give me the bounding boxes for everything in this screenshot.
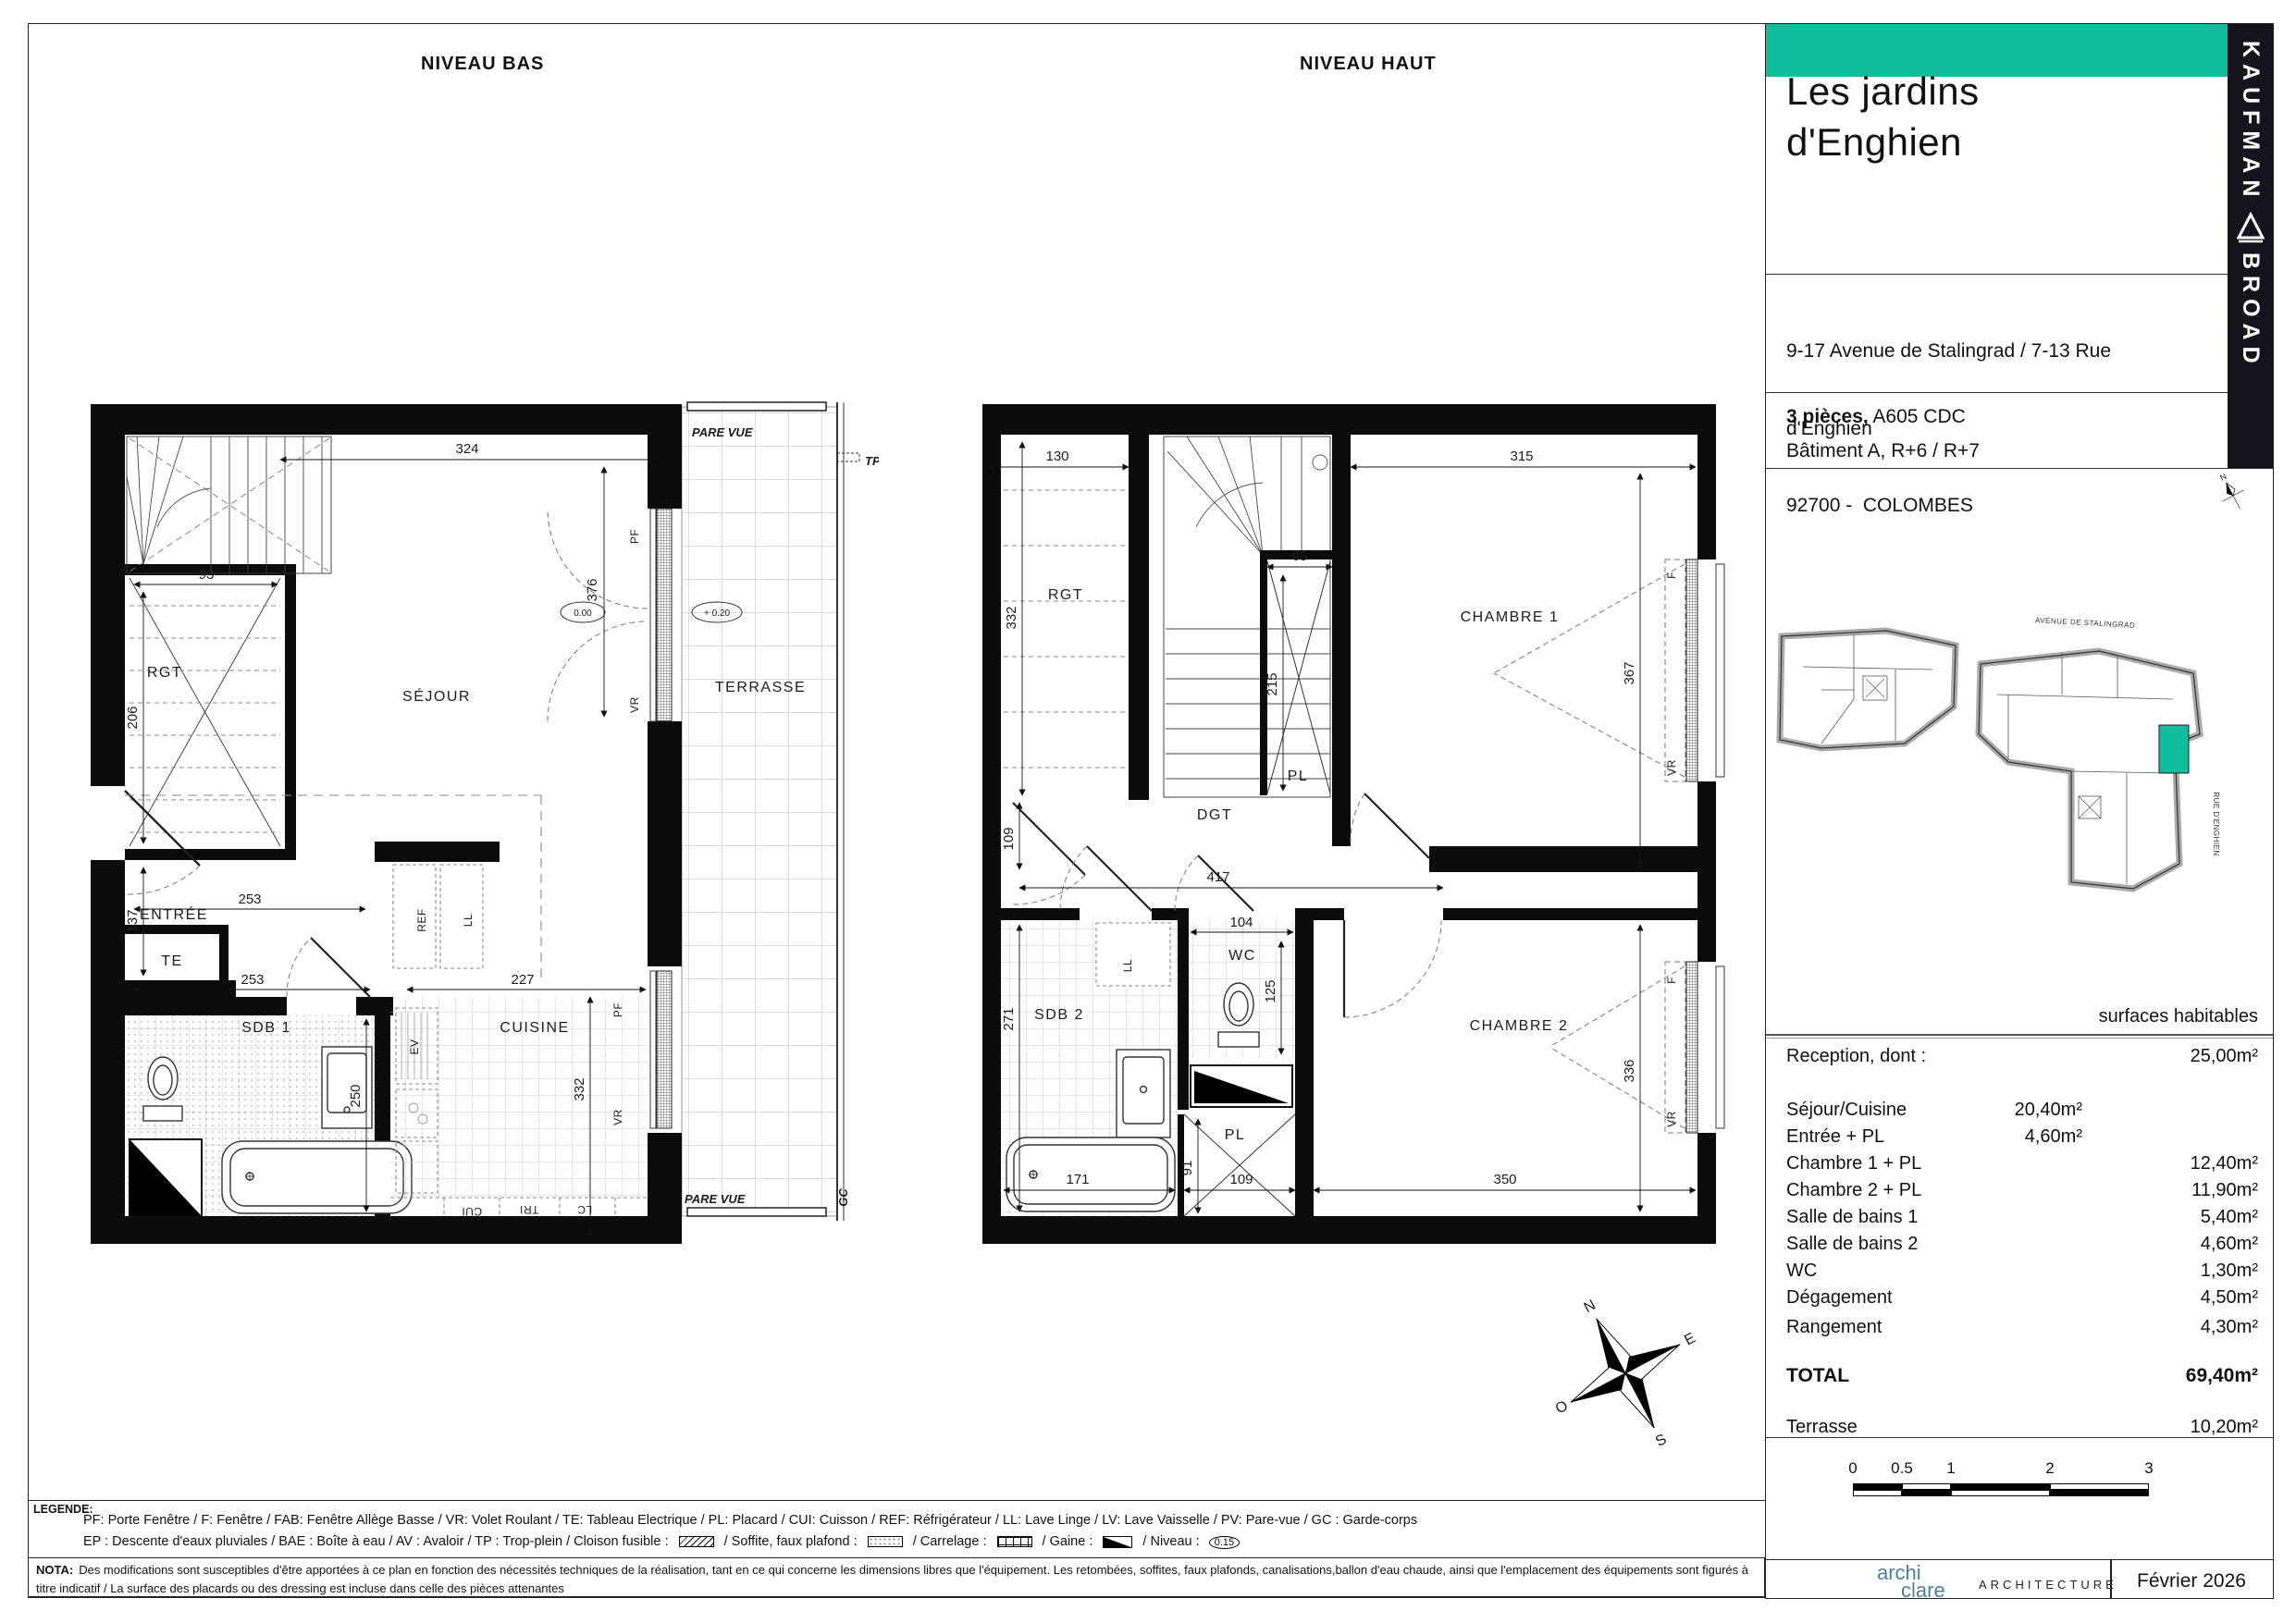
title-block-panel: KAUFMAN BROAD Les jardins d'Enghien 9-17…: [1765, 23, 2274, 1599]
soffit-dashes: [125, 795, 541, 978]
washbasin-icon: [1117, 1050, 1170, 1137]
row-label: Dégagement: [1786, 1287, 1893, 1309]
divider: [1766, 1034, 2273, 1036]
wc-zone: [1189, 920, 1295, 1059]
label-pare-vue-top: PARE VUE: [692, 425, 753, 439]
divider: [1766, 1437, 2273, 1438]
row-value: 12,40m²: [2191, 1153, 2258, 1174]
legend-line2-text-d: / Gaine :: [1043, 1534, 1093, 1549]
dim-215: 215: [1265, 672, 1280, 695]
dim-130: 130: [1045, 449, 1068, 464]
nota-label: NOTA:: [36, 1563, 73, 1577]
pare-vue-bar-bottom: [687, 1208, 826, 1216]
legend-line2: EP : Descente d'eaux pluviales / BAE : B…: [83, 1534, 1240, 1549]
stairs-icon: [127, 436, 331, 573]
kaufman-broad-triangle-icon: [2237, 212, 2265, 243]
row-label: Chambre 1 + PL: [1786, 1153, 1921, 1174]
surfaces-header: surfaces habitables: [1766, 1006, 2258, 1027]
label-f-chambre2: F: [1665, 977, 1678, 984]
room-sejour: SÉJOUR: [402, 687, 471, 705]
label-vr-cuisine: VR: [611, 1109, 624, 1125]
chambre2-window: [1686, 962, 1724, 1133]
table-row: Chambre 1 + PL12,40m²: [1766, 1153, 2273, 1177]
project-name-line2: d'Enghien: [1786, 117, 1980, 167]
table-row: WC1,30m²: [1766, 1260, 2273, 1285]
label-f-chambre1: F: [1665, 572, 1678, 579]
room-rgt: RGT: [1048, 587, 1083, 603]
label-vr-sejour: VR: [628, 696, 641, 713]
keyplan-building-a: [1780, 631, 1956, 748]
entrance-door: [125, 791, 200, 894]
scale-tick-1: 1: [1946, 1459, 1955, 1478]
nota: NOTA:Des modifications sont susceptibles…: [28, 1557, 1765, 1597]
plan-title-bas: NIVEAU BAS: [421, 54, 544, 75]
project-name: Les jardins d'Enghien: [1786, 66, 1980, 168]
label-ref: REF: [415, 908, 428, 932]
dim-227: 227: [511, 972, 534, 988]
row-value-mid: 20,40m²: [2015, 1100, 2082, 1121]
scale-tick-0: 0: [1848, 1459, 1857, 1478]
compass-rose: N E S O: [1547, 1285, 1704, 1461]
project-name-line1: Les jardins: [1786, 66, 1980, 117]
brand-broad: BROAD: [2237, 252, 2264, 370]
room-entree: ENTRÉE: [140, 905, 208, 923]
room-pl-top: PL: [1288, 768, 1309, 784]
north-icon: N: [2210, 468, 2251, 514]
floorplan-niveau-haut: 130 332 65 215 315 367 417 109 104 125 2…: [976, 379, 1725, 1304]
row-label: WC: [1786, 1260, 1817, 1282]
sdb1-zone: [125, 938, 412, 1216]
terrace-value: 10,20m²: [2191, 1417, 2258, 1438]
room-te: TE: [161, 953, 182, 969]
cuisine-zone: [390, 865, 648, 1216]
dim-315: 315: [1510, 449, 1533, 464]
label-pf-sejour: PF: [628, 529, 641, 544]
row-value: 11,90m²: [2191, 1180, 2258, 1201]
level-020: + 0.20: [704, 609, 731, 619]
room-cuisine: CUISINE: [500, 1020, 569, 1036]
unit-ref: A605 CDC: [1869, 406, 1966, 427]
row-label: Séjour/Cuisine: [1786, 1100, 1907, 1121]
keyplan-unit-highlight: [2159, 725, 2189, 773]
row-value-mid: 4,60m²: [2025, 1126, 2082, 1148]
table-row: Dégagement4,50m²: [1766, 1287, 2273, 1311]
gaine-icon: [1191, 1065, 1292, 1107]
dim-417: 417: [1206, 869, 1229, 885]
table-row: Entrée + PL4,60m²: [1766, 1126, 2273, 1150]
terrace-label: Terrasse: [1786, 1417, 1858, 1438]
row-value: 25,00m²: [2191, 1046, 2258, 1067]
scale-tick-3: 3: [2144, 1459, 2153, 1478]
dim-104: 104: [1229, 915, 1253, 930]
label-ll-sdb2: LL: [1121, 959, 1134, 972]
chambre1-window: [1686, 559, 1724, 781]
dim-65: 65: [1292, 548, 1308, 564]
address-line1: 9-17 Avenue de Stalingrad / 7-13 Rue: [1786, 338, 2212, 364]
label-vr-chambre1: VR: [1665, 759, 1678, 776]
row-value: 4,50m²: [2201, 1287, 2258, 1309]
plan-title-haut: NIVEAU HAUT: [1300, 54, 1437, 75]
row-label: Salle de bains 2: [1786, 1234, 1918, 1255]
legend-line2-text-a: EP : Descente d'eaux pluviales / BAE : B…: [83, 1534, 669, 1549]
keyplan-building-b: [1979, 651, 2200, 889]
terrace-zone: [682, 402, 859, 1221]
scale-tick-05: 0.5: [1891, 1459, 1913, 1478]
architect-logo: archi clare: [1877, 1565, 1945, 1599]
gaine-icon: [130, 1139, 202, 1216]
divider: [1766, 392, 2228, 393]
legend: LEGENDE: PF: Porte Fenêtre / F: Fenêtre …: [28, 1500, 1765, 1558]
room-sdb1: SDB 1: [241, 1020, 291, 1036]
label-tp: TP: [865, 454, 879, 468]
level-0: 0.00: [574, 609, 592, 619]
logo-line2: clare: [1901, 1582, 1945, 1600]
dim-93: 93: [199, 567, 215, 583]
label-ev: EV: [408, 1039, 421, 1054]
dim-336: 336: [1622, 1059, 1637, 1082]
divider: [1766, 1038, 2273, 1039]
compass-e: E: [1682, 1330, 1697, 1348]
dim-206: 206: [125, 706, 141, 729]
carrelage-swatch: [997, 1536, 1032, 1547]
architect-label: ARCHITECTURE: [1979, 1578, 2117, 1592]
north-letter: N: [2218, 472, 2228, 483]
pare-vue-bar-top: [687, 402, 826, 411]
sejour-window: [650, 509, 672, 721]
dim-109b: 109: [1229, 1172, 1253, 1187]
row-value: 4,30m²: [2201, 1317, 2258, 1338]
trop-plein-symbol: [837, 453, 859, 461]
dim-332: 332: [1004, 606, 1019, 629]
floorplan-niveau-bas: 324 376 93 206 137 253 253 227 250 332 0…: [56, 379, 879, 1304]
dim-91: 91: [1179, 1161, 1195, 1176]
dim-109a: 109: [1001, 827, 1017, 850]
label-pare-vue-bottom: PARE VUE: [685, 1192, 746, 1206]
room-terrasse: TERRASSE: [715, 680, 806, 695]
keyplan-rue-label: RUE D'ENGHIEN: [2212, 792, 2220, 855]
table-total-row: TOTAL69,40m²: [1766, 1365, 2273, 1389]
table-row: Chambre 2 + PL11,90m²: [1766, 1180, 2273, 1204]
legend-line1: PF: Porte Fenêtre / F: Fenêtre / FAB: Fe…: [83, 1513, 1417, 1528]
row-value: 4,60m²: [2201, 1234, 2258, 1255]
soffite-swatch: [868, 1536, 903, 1547]
row-label: Rangement: [1786, 1317, 1882, 1338]
label-pf-cuisine: PF: [611, 1002, 624, 1017]
legend-line2-text-e: / Niveau :: [1142, 1534, 1199, 1549]
key-plan: N AVENUE DE STALINGRAD RUE D'ENGHIEN: [1766, 468, 2273, 1004]
gaine-swatch: [1103, 1536, 1132, 1548]
keyplan-avenue-label: AVENUE DE STALINGRAD: [2035, 616, 2136, 630]
room-rgt: RGT: [147, 665, 182, 681]
dim-125: 125: [1263, 979, 1278, 1002]
total-value: 69,40m²: [2186, 1365, 2258, 1387]
legend-line2-text-c: / Carrelage :: [913, 1534, 987, 1549]
row-value: 5,40m²: [2201, 1207, 2258, 1228]
row-label: Entrée + PL: [1786, 1126, 1884, 1148]
label-cui: CUI: [462, 1205, 482, 1218]
dim-137: 137: [125, 909, 141, 932]
table-row: Salle de bains 24,60m²: [1766, 1234, 2273, 1258]
scale-tick-2: 2: [2045, 1459, 2054, 1478]
cuisine-window: [650, 971, 672, 1128]
unit-type: 3 pièces,: [1786, 406, 1869, 427]
row-label: Reception, dont :: [1786, 1046, 1926, 1067]
room-chambre2: CHAMBRE 2: [1470, 1018, 1569, 1034]
room-dgt: DGT: [1197, 807, 1232, 823]
room-sdb2: SDB 2: [1034, 1007, 1084, 1023]
niveau-chip: 0.15: [1209, 1536, 1240, 1549]
divider: [1766, 274, 2228, 275]
label-gc: GC: [836, 1188, 850, 1207]
cloison-fusible-swatch: [679, 1536, 714, 1547]
table-row: Séjour/Cuisine20,40m²: [1766, 1100, 2273, 1124]
washbasin-icon: [322, 1047, 372, 1128]
room-chambre1: CHAMBRE 1: [1461, 609, 1560, 625]
dim-253b: 253: [241, 972, 264, 988]
total-label: TOTAL: [1786, 1365, 1849, 1387]
compass-s: S: [1653, 1432, 1669, 1450]
compass-o: O: [1553, 1398, 1571, 1418]
brand-kaufman: KAUFMAN: [2237, 41, 2264, 203]
dim-332: 332: [572, 1077, 587, 1100]
room-wc: WC: [1228, 948, 1256, 964]
stairs-icon: [1164, 436, 1330, 797]
unit-building: Bâtiment A, R+6 / R+7: [1786, 440, 1980, 462]
compass-n: N: [1582, 1297, 1599, 1316]
dim-250: 250: [348, 1084, 364, 1107]
kaufman-broad-band: KAUFMAN BROAD: [2228, 24, 2273, 468]
row-label: Salle de bains 1: [1786, 1207, 1918, 1228]
table-row: Rangement4,30m²: [1766, 1317, 2273, 1341]
nota-text: Des modifications sont susceptibles d'êt…: [36, 1563, 1748, 1595]
chambre2-window-swing: [1549, 962, 1685, 1133]
dim-253a: 253: [238, 891, 261, 907]
dim-324: 324: [455, 441, 478, 457]
row-value: 1,30m²: [2201, 1260, 2258, 1282]
label-ll: LL: [462, 914, 475, 927]
dim-171: 171: [1066, 1172, 1089, 1187]
rgt-closet: [130, 578, 280, 846]
label-vr-chambre2: VR: [1665, 1111, 1678, 1127]
unit-reference: 3 pièces, A605 CDC: [1786, 406, 1966, 428]
legend-line2-text-b: / Soffite, faux plafond :: [724, 1534, 858, 1549]
row-label: Chambre 2 + PL: [1786, 1180, 1921, 1201]
label-lc: LC: [577, 1203, 592, 1216]
dim-367: 367: [1622, 661, 1637, 684]
table-row: Reception, dont :25,00m²: [1766, 1046, 2273, 1070]
sheet-date: Février 2026: [2110, 1570, 2273, 1592]
bathtub-icon: [1006, 1137, 1175, 1211]
chambre1-window-swing: [1494, 559, 1685, 781]
dim-350: 350: [1493, 1172, 1516, 1187]
sdb1-door: [287, 938, 370, 997]
table-row: Salle de bains 15,40m²: [1766, 1207, 2273, 1231]
dim-376: 376: [585, 578, 600, 601]
room-pl-bottom: PL: [1225, 1127, 1246, 1143]
label-tri: TRI: [520, 1203, 539, 1216]
dim-271: 271: [1001, 1007, 1017, 1030]
bathtub-icon: [222, 1141, 412, 1213]
